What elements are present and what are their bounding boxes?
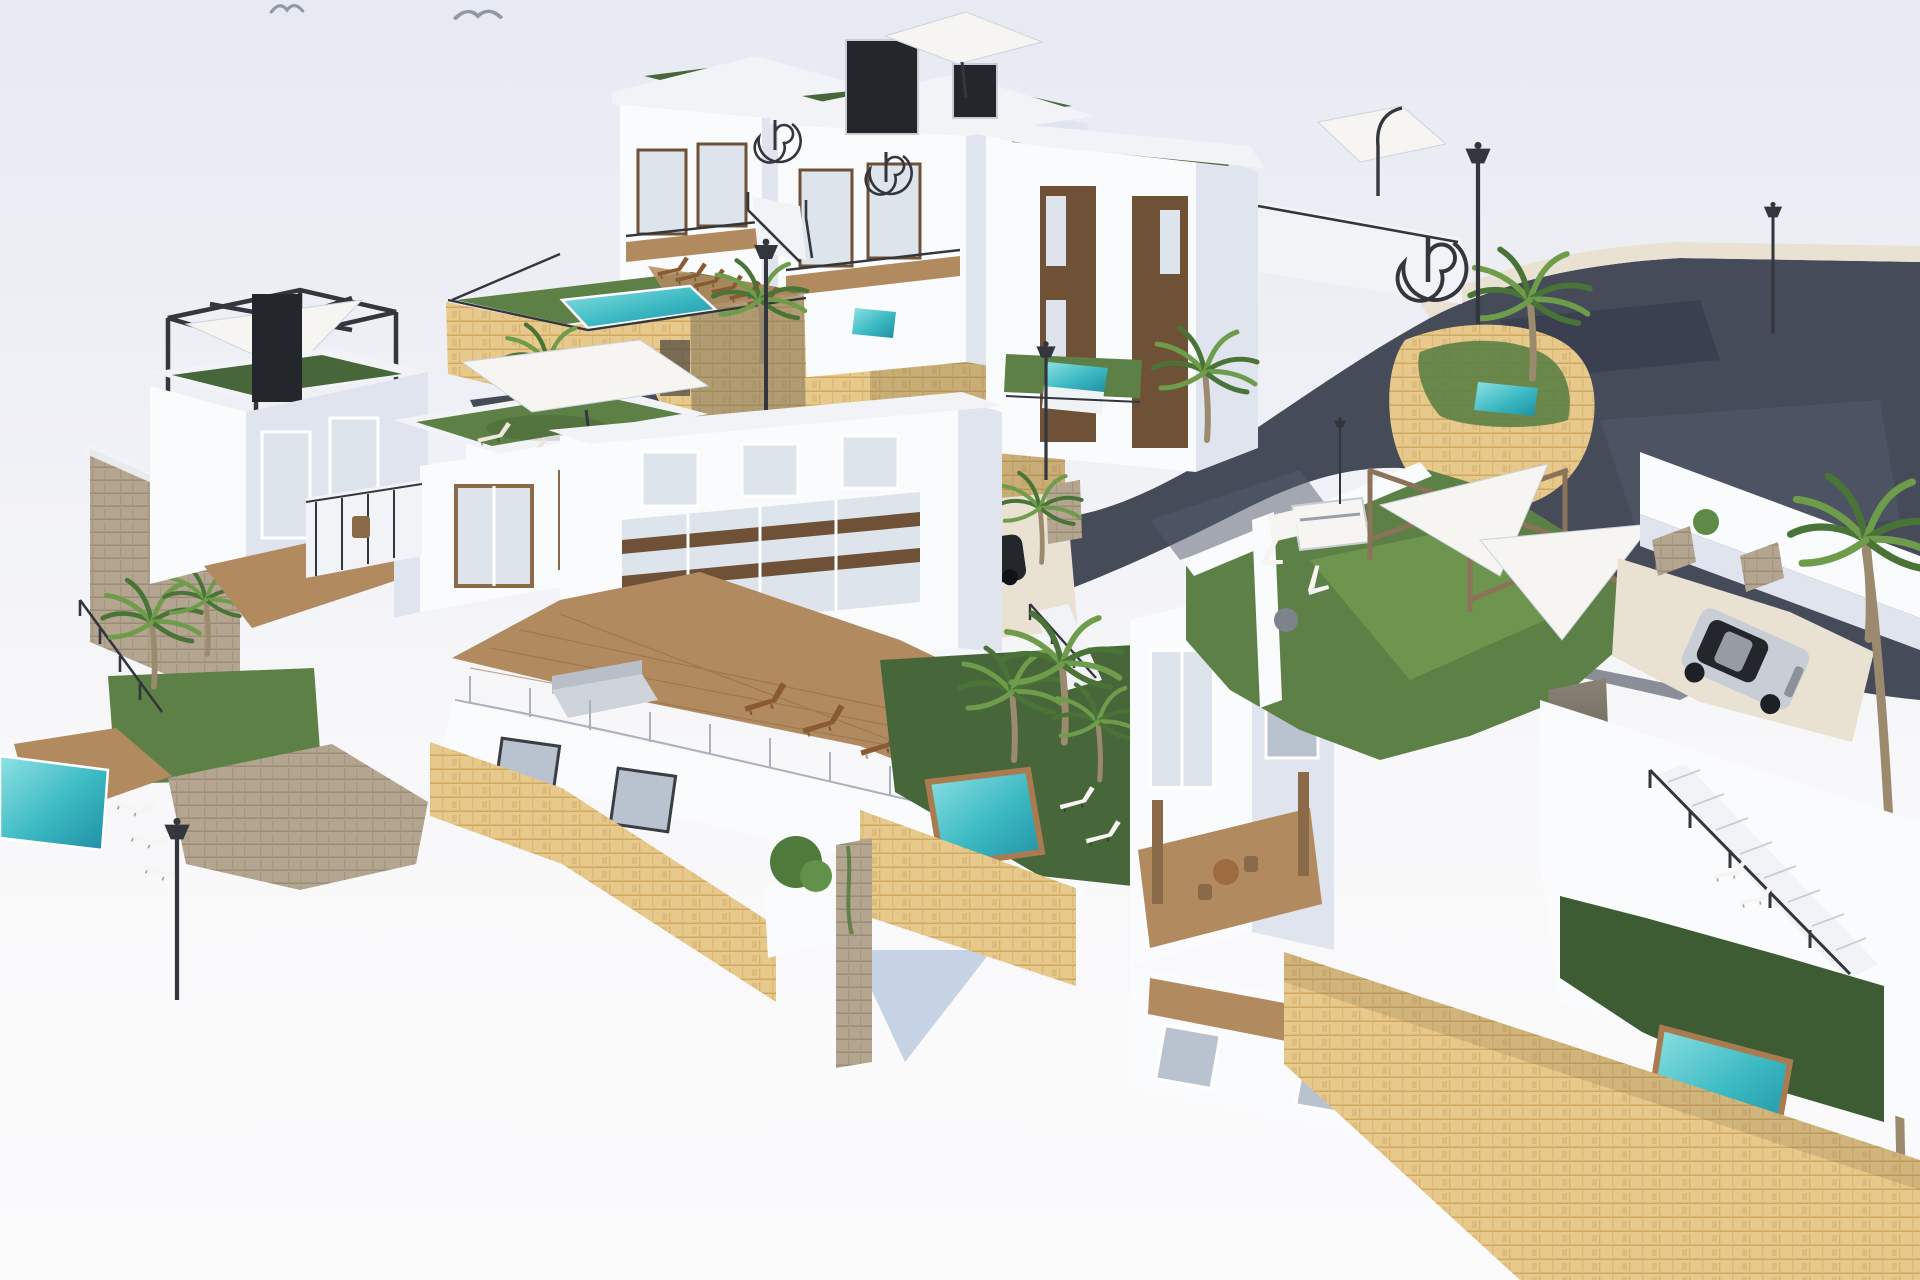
tall-villa-brown-window-pane bbox=[1046, 196, 1066, 266]
solar-panel bbox=[846, 40, 918, 134]
tall-villa-brown-window2-pane bbox=[1160, 210, 1180, 274]
upper-window bbox=[742, 444, 798, 496]
roof-plant-screen bbox=[252, 294, 302, 402]
bean-bag bbox=[1274, 608, 1298, 632]
left-villa-window bbox=[262, 432, 310, 538]
lower-window bbox=[1156, 1026, 1221, 1089]
terrace-pillar bbox=[1152, 800, 1163, 904]
townhouse2-window bbox=[800, 170, 852, 266]
bush bbox=[800, 860, 832, 892]
rear-mini-pool bbox=[852, 308, 896, 338]
upper-window bbox=[842, 436, 898, 488]
curved-wall-pool bbox=[1474, 382, 1538, 416]
lower-window bbox=[610, 768, 675, 832]
central-villa-side bbox=[958, 400, 1002, 652]
terrace-pillar bbox=[1298, 772, 1309, 876]
balcony-chair bbox=[352, 516, 370, 538]
terrace-chair bbox=[1198, 884, 1212, 900]
terrace-chair bbox=[1244, 856, 1258, 872]
left-pool bbox=[0, 756, 108, 850]
solar-panel bbox=[953, 64, 997, 118]
stone-pillar bbox=[836, 838, 872, 1068]
left-villa-front bbox=[150, 386, 246, 584]
bbq-body bbox=[1292, 498, 1370, 550]
render-image: Aerial 3D architectural rendering of a m… bbox=[0, 0, 1920, 1280]
townhouse1-window bbox=[638, 150, 686, 234]
render-canvas: Aerial 3D architectural rendering of a m… bbox=[0, 0, 1920, 1280]
dining-table bbox=[1213, 859, 1239, 885]
townhouse1-window bbox=[698, 144, 746, 226]
upper-window bbox=[642, 452, 698, 506]
shrub bbox=[1693, 509, 1719, 535]
